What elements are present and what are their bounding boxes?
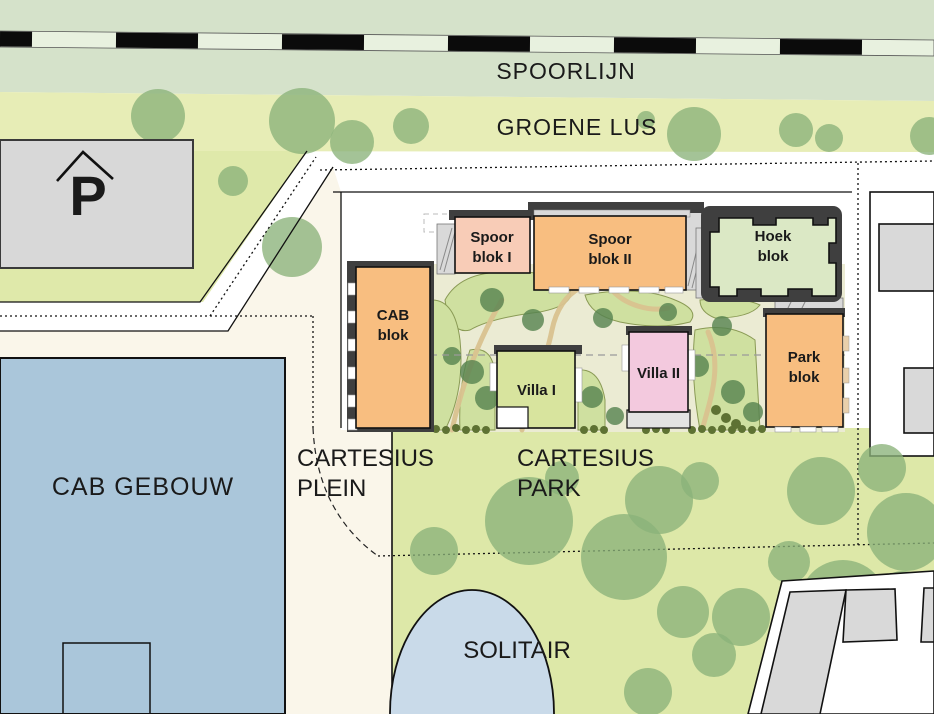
neighbour-building: [879, 224, 934, 291]
neighbour-building: [904, 368, 934, 433]
spoor-blok-2-label: Spoor blok II: [582, 230, 638, 270]
neighbour-plot-east: [870, 192, 934, 456]
cab-gebouw-label: CAB GEBOUW: [23, 473, 263, 502]
hoek-blok-label: Hoek blok: [750, 227, 796, 267]
railway-label: SPOORLIJN: [441, 58, 691, 85]
parking-label: P: [48, 168, 128, 224]
cab-gebouw-building: [0, 358, 285, 714]
cartesius-park-label: CARTESIUS PARK: [517, 444, 713, 504]
cab-blok-label: CAB blok: [371, 306, 415, 346]
site-plan-map: SPOORLIJN GROENE LUS P CAB blok Spoor bl…: [0, 0, 934, 720]
neighbour-building: [843, 589, 897, 642]
villa-1-label: Villa I: [500, 381, 573, 401]
bottom-margin: [0, 714, 934, 720]
spoor-blok-1-label: Spoor blok I: [466, 228, 518, 268]
pond-label: SOLITAIR: [427, 637, 607, 665]
cartesius-plein-label: CARTESIUS PLEIN: [297, 444, 493, 504]
park-blok-label: Park blok: [782, 348, 826, 388]
rail-dashes: [0, 39, 934, 48]
cab-blok-building: [347, 261, 434, 432]
villa-1-notch: [497, 407, 528, 428]
greenbelt-label: GROENE LUS: [452, 114, 702, 141]
neighbour-building: [921, 588, 934, 642]
villa-2-label: Villa II: [622, 364, 695, 384]
